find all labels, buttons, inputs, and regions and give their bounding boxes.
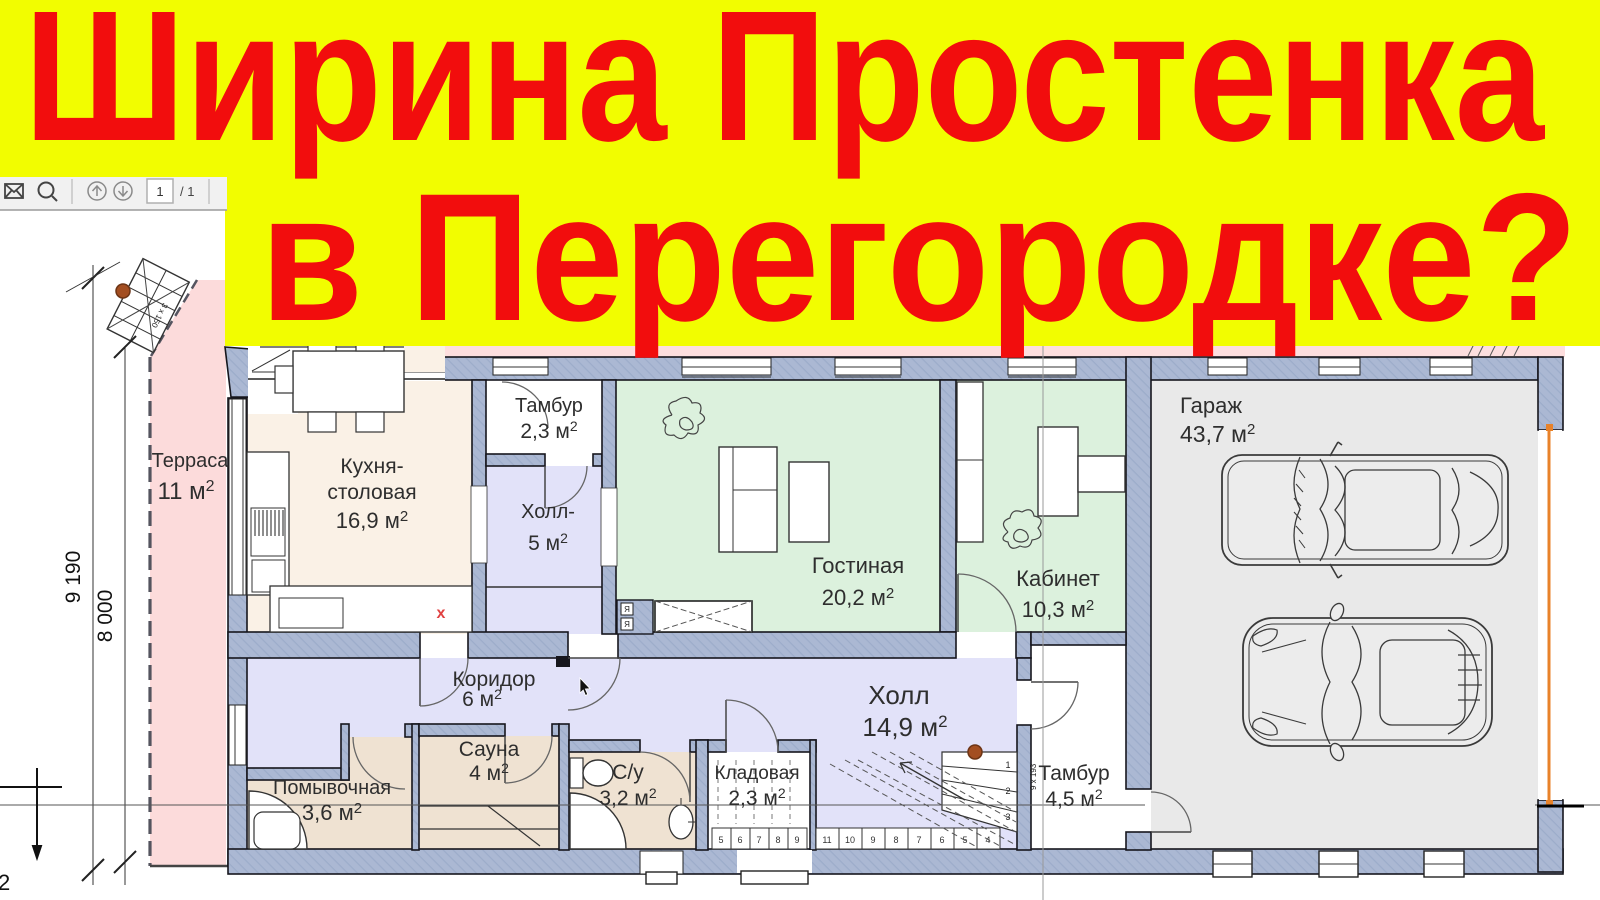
svg-text:20,2 м2: 20,2 м2 <box>822 585 894 610</box>
svg-text:4,5 м2: 4,5 м2 <box>1045 786 1102 811</box>
svg-text:9 x 193: 9 x 193 <box>1029 763 1038 790</box>
svg-text:9 190: 9 190 <box>62 551 85 604</box>
svg-text:2: 2 <box>1005 786 1010 796</box>
svg-text:8 000: 8 000 <box>94 590 117 643</box>
svg-text:Холл: Холл <box>868 680 929 710</box>
svg-text:43,7 м2: 43,7 м2 <box>1180 421 1255 447</box>
svg-text:8: 8 <box>775 835 780 845</box>
svg-text:Сауна: Сауна <box>459 738 520 761</box>
svg-text:5: 5 <box>718 835 723 845</box>
svg-text:8: 8 <box>893 835 898 845</box>
svg-text:3,2 м2: 3,2 м2 <box>599 785 656 810</box>
svg-text:1: 1 <box>1005 760 1010 770</box>
svg-text:9: 9 <box>870 835 875 845</box>
svg-text:1: 1 <box>156 184 163 199</box>
svg-text:Гостиная: Гостиная <box>812 553 904 578</box>
svg-text:7: 7 <box>916 835 921 845</box>
svg-text:Ширина Простенка: Ширина Простенка <box>24 0 1545 180</box>
svg-text:10: 10 <box>845 835 855 845</box>
svg-text:Тамбур: Тамбур <box>1038 762 1109 785</box>
svg-text:Я: Я <box>624 605 630 614</box>
svg-text:/ 1: / 1 <box>180 184 194 199</box>
svg-text:2,3 м2: 2,3 м2 <box>728 785 785 810</box>
svg-text:Холл-: Холл- <box>521 501 575 523</box>
svg-text:6: 6 <box>737 835 742 845</box>
svg-text:3,6 м2: 3,6 м2 <box>302 800 362 825</box>
svg-text:Кладовая: Кладовая <box>714 763 799 784</box>
svg-text:2,3 м2: 2,3 м2 <box>520 418 577 443</box>
svg-text:7: 7 <box>756 835 761 845</box>
svg-text:столовая: столовая <box>327 481 416 504</box>
svg-text:x: x <box>437 605 446 622</box>
svg-text:11: 11 <box>822 835 831 845</box>
svg-text:16,9 м2: 16,9 м2 <box>336 508 408 533</box>
svg-text:Кабинет: Кабинет <box>1016 566 1100 591</box>
svg-text:С/у: С/у <box>612 761 644 784</box>
svg-text:14,9 м2: 14,9 м2 <box>862 712 947 742</box>
svg-text:10,3 м2: 10,3 м2 <box>1022 597 1094 622</box>
svg-text:Помывочная: Помывочная <box>273 777 391 799</box>
svg-text:Тамбур: Тамбур <box>515 395 583 417</box>
svg-text:9: 9 <box>794 835 799 845</box>
svg-text:Гараж: Гараж <box>1180 393 1242 418</box>
svg-text:2: 2 <box>0 870 10 895</box>
svg-text:6: 6 <box>939 835 944 845</box>
svg-text:Терраса: Терраса <box>152 450 230 472</box>
svg-text:Кухня-: Кухня- <box>340 455 403 478</box>
svg-text:Я: Я <box>624 620 630 629</box>
svg-text:в Перегородке?: в Перегородке? <box>260 155 1578 359</box>
